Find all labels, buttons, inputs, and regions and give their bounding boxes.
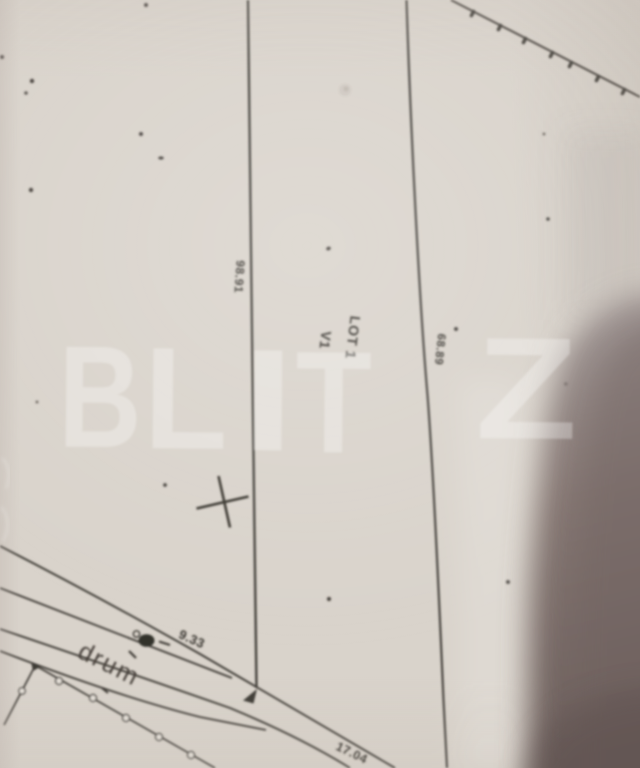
svg-text:T: T [295,321,373,484]
svg-text:Z: Z [475,308,578,471]
svg-text:L: L [143,317,228,480]
svg-text:B: B [58,315,143,478]
svg-text:I: I [240,320,295,482]
